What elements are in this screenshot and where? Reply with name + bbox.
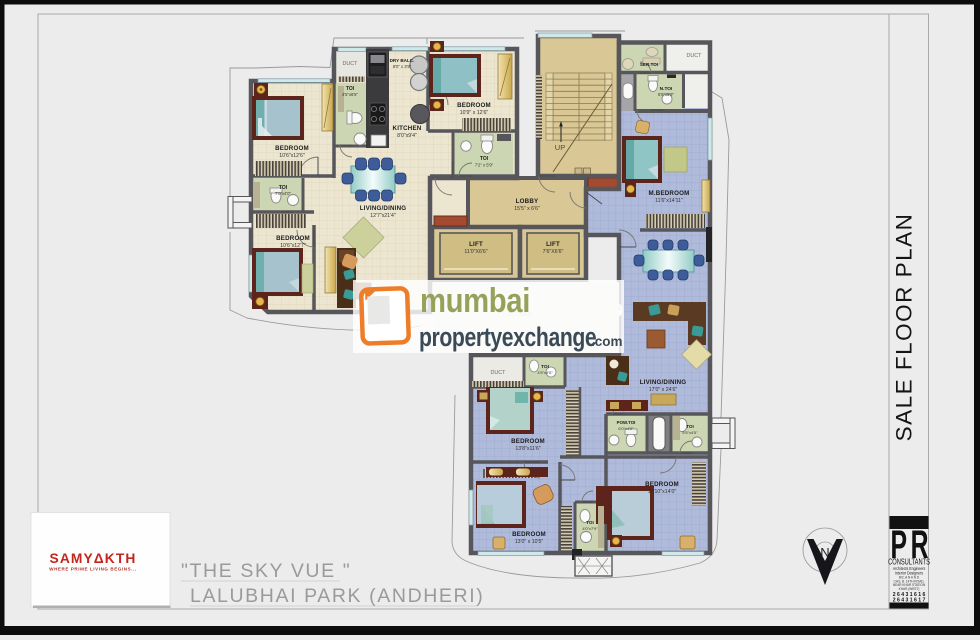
svg-text:.com: .com xyxy=(591,334,623,349)
svg-text:4'0"x7'9": 4'0"x7'9" xyxy=(582,526,598,531)
svg-text:DRY BALC.: DRY BALC. xyxy=(390,58,415,63)
svg-text:LIVING/DINING: LIVING/DINING xyxy=(360,205,407,212)
svg-text:UP: UP xyxy=(555,143,565,152)
svg-text:12'7"x21'4": 12'7"x21'4" xyxy=(370,213,396,219)
svg-text:LOBBY: LOBBY xyxy=(516,198,539,205)
svg-text:BEDROOM: BEDROOM xyxy=(645,481,679,488)
svg-text:8'0"x9'4": 8'0"x9'4" xyxy=(397,133,417,139)
svg-text:13'8"x11'6": 13'8"x11'6" xyxy=(515,446,540,452)
svg-text:LALUBHAI PARK (ANDHERI): LALUBHAI PARK (ANDHERI) xyxy=(190,585,484,607)
svg-text:DUCT: DUCT xyxy=(343,61,359,67)
svg-text:LIFT: LIFT xyxy=(469,241,483,248)
svg-text:SAMYΔKTH: SAMYΔKTH xyxy=(50,551,137,566)
svg-text:SER.TOI: SER.TOI xyxy=(640,62,658,67)
svg-text:KITCHEN: KITCHEN xyxy=(393,125,422,132)
svg-text:5'5"x4'5": 5'5"x4'5" xyxy=(682,430,698,435)
svg-text:11'6"x14'11": 11'6"x14'11" xyxy=(655,198,683,204)
svg-text:DUCT: DUCT xyxy=(491,370,507,376)
svg-text:SALE FLOOR PLAN: SALE FLOOR PLAN xyxy=(892,213,917,442)
svg-text:mumbai: mumbai xyxy=(420,281,530,320)
svg-text:TOI: TOI xyxy=(480,156,489,162)
svg-text:M.BEDROOM: M.BEDROOM xyxy=(649,190,690,197)
svg-text:7'6"X6'6": 7'6"X6'6" xyxy=(543,249,564,255)
svg-text:DUCT: DUCT xyxy=(687,53,703,59)
svg-text:7'0"x4'0": 7'0"x4'0" xyxy=(275,191,291,196)
svg-text:5'5"x5'9": 5'5"x5'9" xyxy=(658,92,674,97)
svg-text:LIVING/DINING: LIVING/DINING xyxy=(640,379,687,386)
svg-text:13'0" x 10'5": 13'0" x 10'5" xyxy=(515,539,544,545)
svg-text:10'6"x12'7": 10'6"x12'7" xyxy=(280,243,306,249)
svg-text:6'0"x4'0": 6'0"x4'0" xyxy=(618,426,634,431)
svg-text:7'2" x 5'9": 7'2" x 5'9" xyxy=(475,163,494,168)
svg-text:8'0" x 3'9": 8'0" x 3'9" xyxy=(393,64,412,69)
svg-text:BEDROOM: BEDROOM xyxy=(511,438,545,445)
svg-text:POW.TOI: POW.TOI xyxy=(617,420,636,425)
svg-text:11'0"X6'6": 11'0"X6'6" xyxy=(464,249,487,255)
svg-text:"THE SKY VUE ": "THE SKY VUE " xyxy=(181,560,351,582)
svg-text:BEDROOM: BEDROOM xyxy=(275,145,309,152)
svg-text:4'5"x4'0": 4'5"x4'0" xyxy=(537,370,553,375)
svg-text:4'5"x6'5": 4'5"x6'5" xyxy=(342,92,358,97)
svg-text:BEDROOM: BEDROOM xyxy=(457,102,491,109)
svg-text:BEDROOM: BEDROOM xyxy=(512,531,546,538)
svg-text:propertyexchange: propertyexchange xyxy=(419,323,596,353)
svg-text:TOI: TOI xyxy=(586,520,594,525)
svg-text:LIFT: LIFT xyxy=(546,241,560,248)
svg-text:TOI: TOI xyxy=(686,424,694,429)
svg-text:WHERE PRIME LIVING BEGINS...: WHERE PRIME LIVING BEGINS... xyxy=(49,567,137,572)
svg-text:17'0" x 24'6": 17'0" x 24'6" xyxy=(649,387,678,393)
svg-text:KHAR (WEST): KHAR (WEST) xyxy=(899,587,920,591)
svg-text:12'10"x14'0": 12'10"x14'0" xyxy=(648,489,677,495)
svg-text:10'9" x 12'6": 10'9" x 12'6" xyxy=(460,110,489,116)
svg-text:15'5" x 6'6": 15'5" x 6'6" xyxy=(514,206,540,212)
svg-text:BEDROOM: BEDROOM xyxy=(276,235,310,242)
svg-text:10'6"x12'6": 10'6"x12'6" xyxy=(279,153,305,159)
